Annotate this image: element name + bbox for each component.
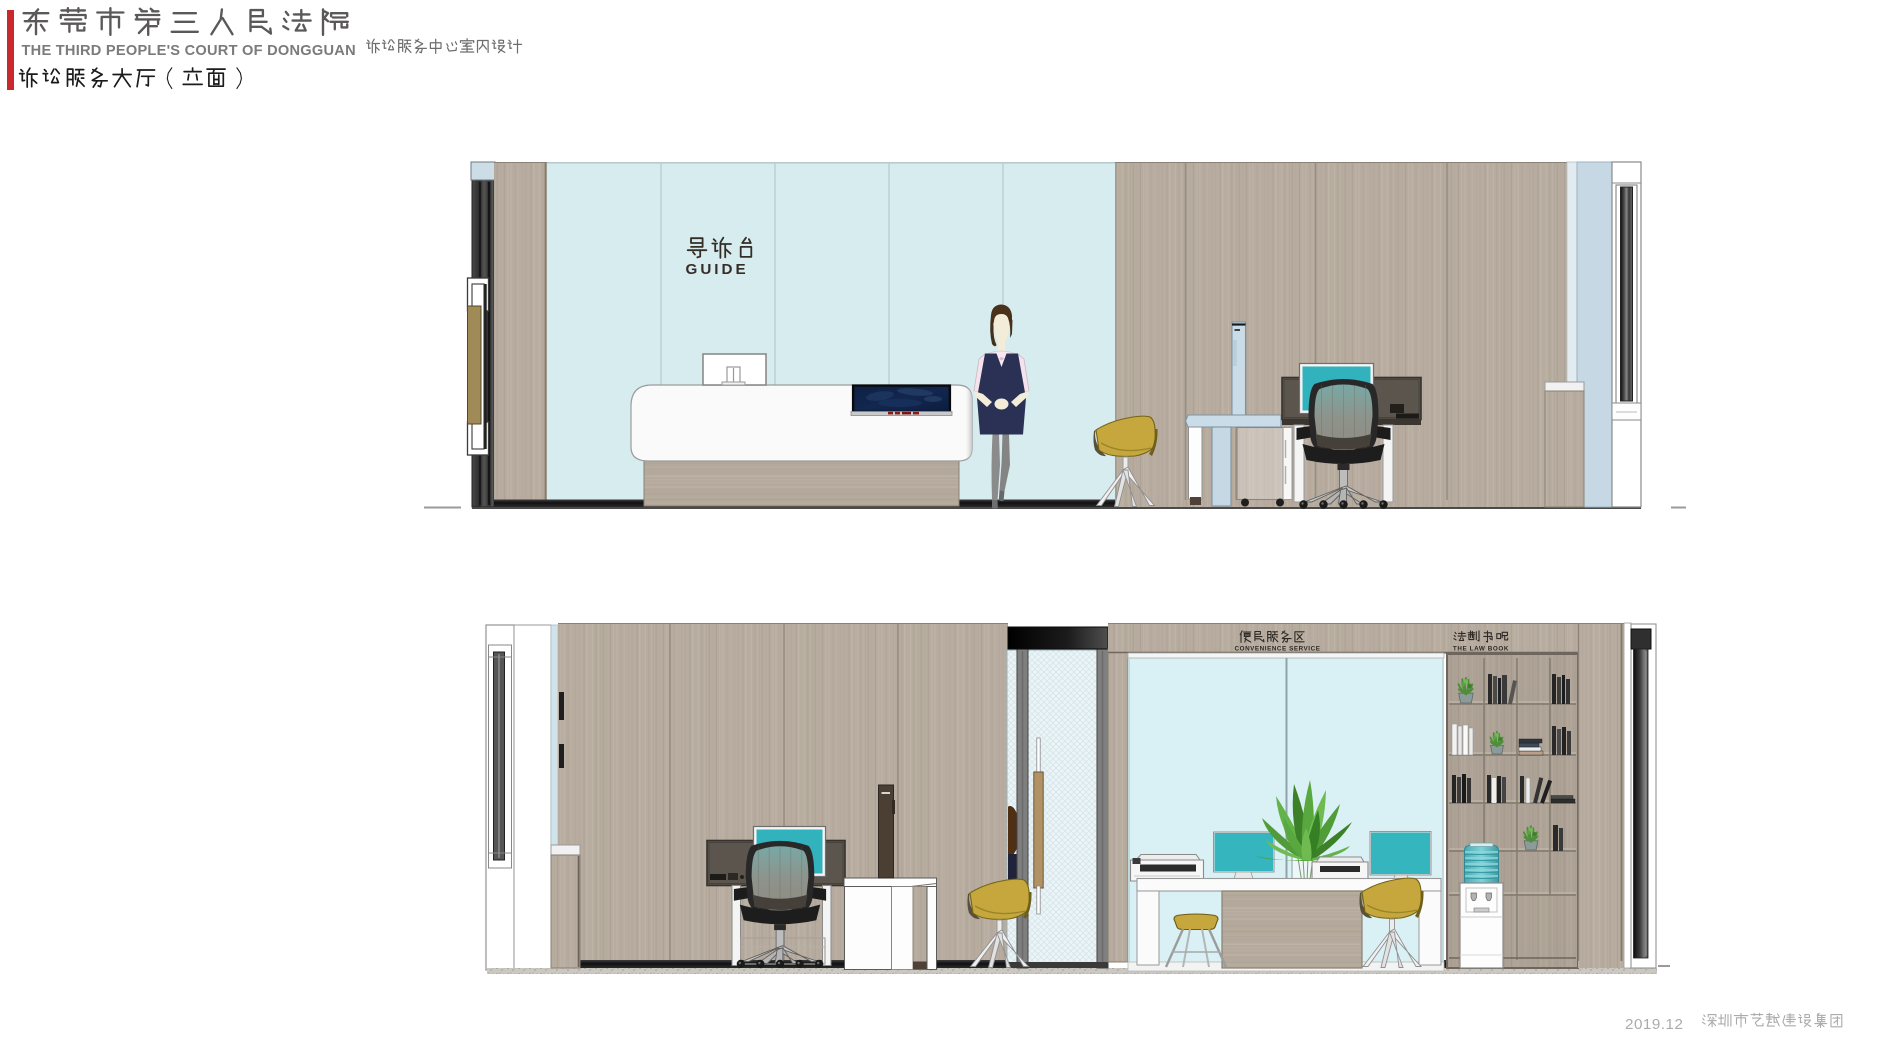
svg-text:THE THIRD PEOPLE'S COURT OF DO: THE THIRD PEOPLE'S COURT OF DONGGUAN [22,43,356,59]
svg-text:2019.12: 2019.12 [1625,1016,1683,1033]
svg-text:GUIDE: GUIDE [686,261,749,278]
svg-text:THE LAW BOOK: THE LAW BOOK [1453,646,1509,653]
svg-text:CONVENIENCE SERVICE: CONVENIENCE SERVICE [1235,646,1321,653]
